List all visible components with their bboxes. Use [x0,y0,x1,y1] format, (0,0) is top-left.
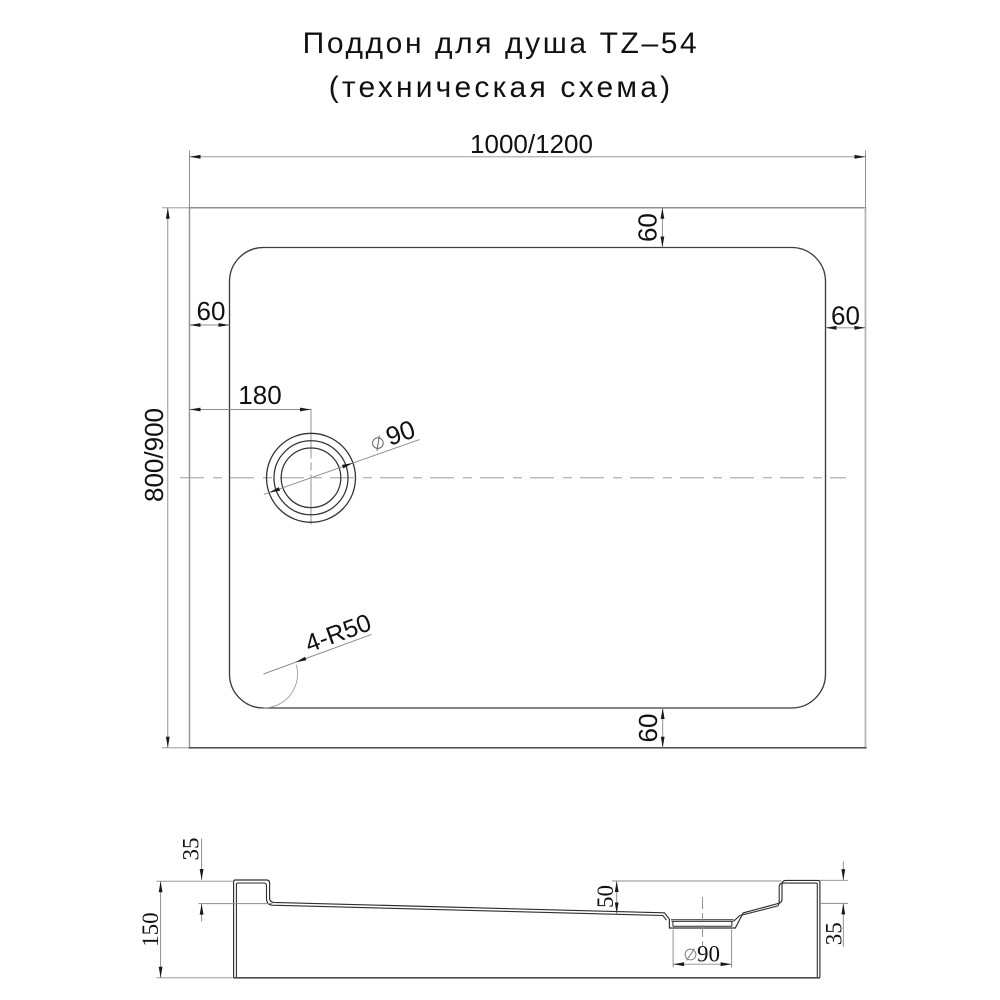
svg-text:60: 60 [633,213,663,242]
svg-text:Поддон для душа TZ–54: Поддон для душа TZ–54 [303,27,700,60]
svg-text:180: 180 [238,380,281,410]
svg-text:90: 90 [697,942,720,967]
svg-text:1000/1200: 1000/1200 [470,129,593,159]
svg-text:35: 35 [179,838,204,861]
svg-text:60: 60 [197,296,226,326]
svg-text:60: 60 [633,714,663,743]
svg-text:800/900: 800/900 [139,408,169,502]
svg-text:35: 35 [822,922,847,945]
svg-text:(техническая схема): (техническая схема) [329,71,674,104]
svg-text:150: 150 [138,912,163,947]
svg-text:50: 50 [593,885,618,908]
svg-text:60: 60 [831,301,860,331]
